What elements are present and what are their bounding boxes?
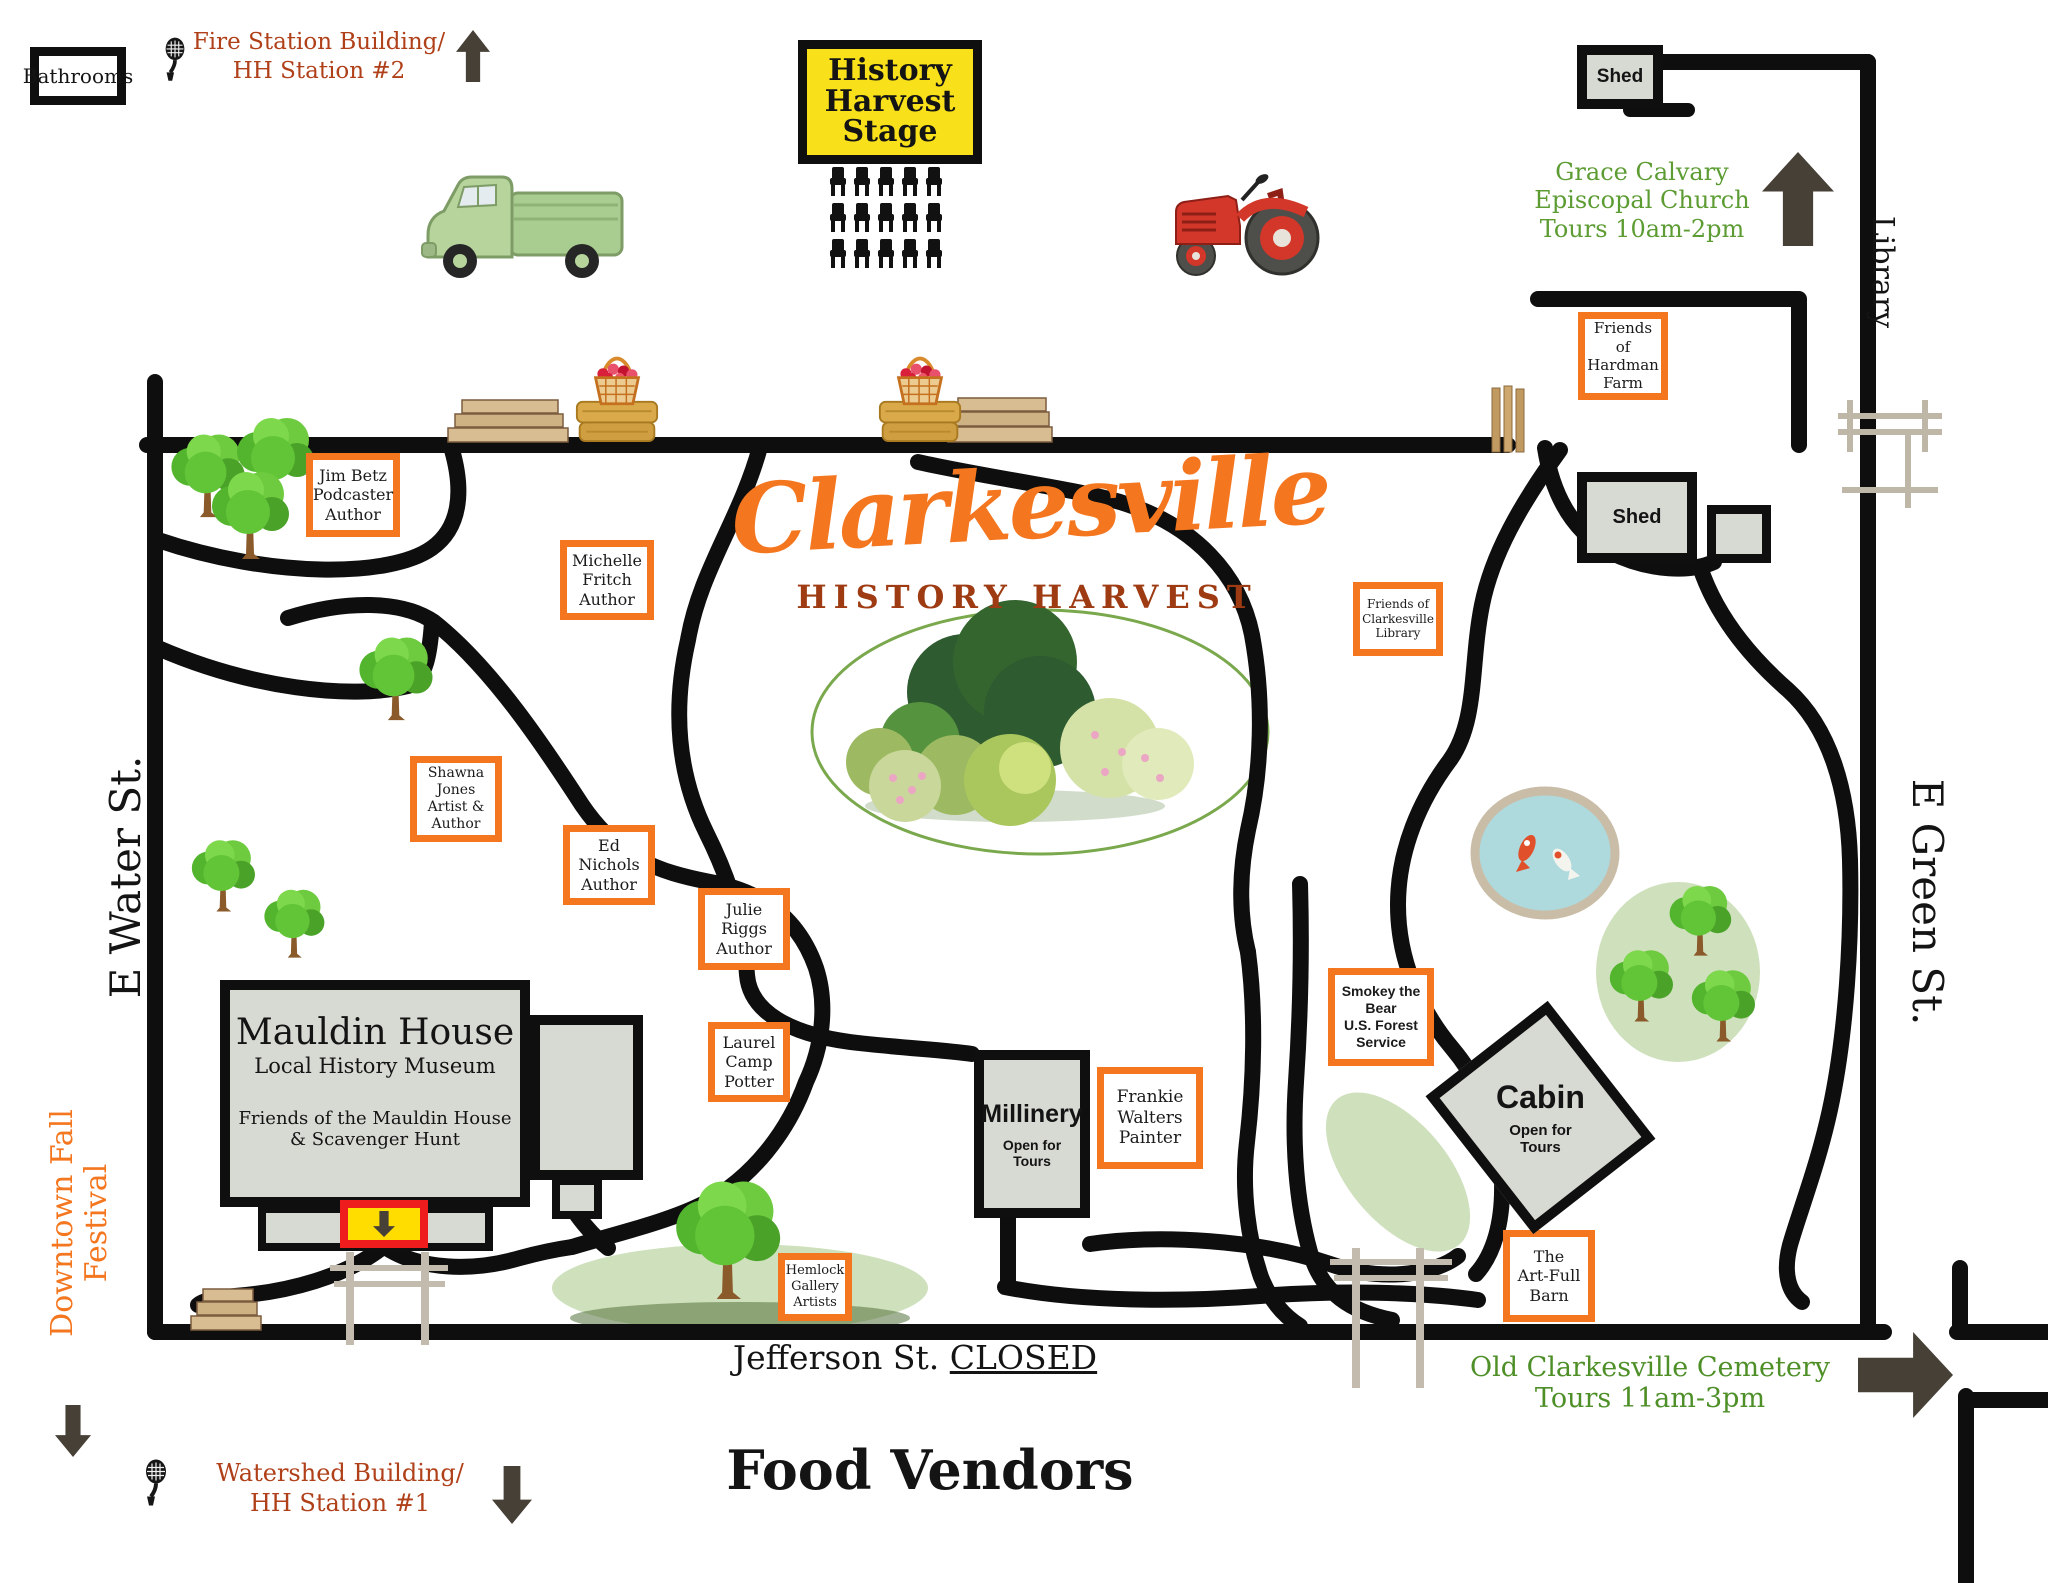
- red-tractor-icon: [1176, 172, 1318, 275]
- shed-mid-annex: [1707, 505, 1771, 563]
- e-green-street-label: E Green St.: [1904, 752, 1952, 1052]
- vendor-box-friends-clarkesville-library: Friends of Clarkesville Library: [1353, 582, 1443, 656]
- fence-top-planks: [1492, 386, 1524, 452]
- vendor-line: Service: [1356, 1034, 1406, 1051]
- vendor-line: Fritch: [582, 570, 632, 590]
- vendor-line: Laurel: [723, 1033, 776, 1053]
- vendor-line: U.S. Forest: [1344, 1017, 1418, 1034]
- vendor-line: Author: [716, 939, 772, 959]
- cemetery-line1: Old Clarkesville Cemetery: [1445, 1352, 1855, 1383]
- vendor-line: Painter: [1119, 1128, 1181, 1149]
- vendor-line: Potter: [724, 1072, 774, 1092]
- jefferson-closed-text: CLOSED: [950, 1338, 1097, 1377]
- vendor-box-julie-riggs: Julie Riggs Author: [698, 888, 790, 970]
- koi-pond: [1475, 791, 1615, 915]
- vendor-line: Frankie: [1117, 1087, 1184, 1108]
- map-subtitle: HISTORY HARVEST: [782, 578, 1272, 616]
- library-street-label: Library: [1860, 192, 1900, 352]
- millinery-name: Millinery: [981, 1100, 1082, 1129]
- microphone-icon: [146, 1460, 166, 1506]
- vendor-box-hemlock-gallery: Hemlock Gallery Artists: [778, 1253, 852, 1321]
- vendor-line: Riggs: [721, 919, 767, 939]
- vendor-line: Michelle: [572, 551, 642, 571]
- vendor-line: Author: [581, 875, 637, 895]
- vendor-line: Hemlock: [786, 1263, 845, 1279]
- vendor-line: Julie: [726, 900, 762, 920]
- vendor-line: Jones: [437, 782, 476, 799]
- vendor-line: Nichols: [578, 855, 639, 875]
- watershed-line1: Watershed Building/: [200, 1458, 480, 1488]
- vendor-box-michelle-fritch: Michelle Fritch Author: [560, 540, 654, 620]
- food-vendors-label: Food Vendors: [690, 1438, 1170, 1502]
- e-water-street-label: E Water St.: [101, 727, 149, 1027]
- stage-line: History: [828, 56, 952, 87]
- vendor-line: Author: [579, 590, 635, 610]
- vendor-line: Walters: [1117, 1108, 1182, 1129]
- path-bottom-inner-2: [1090, 1239, 1458, 1274]
- church-line2: Episcopal Church: [1532, 186, 1752, 214]
- path-bottom-inner-1: [1005, 1287, 1478, 1300]
- tree-icon: [192, 840, 255, 911]
- vendor-box-frankie-walters: Frankie Walters Painter: [1097, 1067, 1203, 1169]
- vendor-line: Artists: [793, 1295, 837, 1311]
- church-tours-sign: Grace Calvary Episcopal Church Tours 10a…: [1532, 158, 1752, 243]
- fire-station-line1: Fire Station Building/: [188, 28, 450, 57]
- vendor-line: Library: [1376, 626, 1421, 641]
- vendor-line: Friends of: [1367, 597, 1429, 612]
- millinery-building: Millinery Open for Tours: [974, 1050, 1090, 1218]
- mauldin-house-building: Mauldin House Local History Museum Frien…: [220, 980, 530, 1207]
- mauldin-annex-connector: [552, 1177, 602, 1219]
- mauldin-entrance-down-arrow-icon: [373, 1211, 395, 1237]
- apple-basket-icon: [880, 358, 960, 441]
- church-line3: Tours 10am-2pm: [1532, 215, 1752, 243]
- mauldin-name: Mauldin House: [236, 1014, 514, 1052]
- e-water-text: E Water St.: [101, 756, 150, 999]
- tree-icon: [264, 890, 324, 958]
- bathrooms-label: Bathrooms: [23, 64, 133, 88]
- cemetery-tours-sign: Old Clarkesville Cemetery Tours 11am-3pm: [1445, 1352, 1855, 1414]
- road-bottom-right-corner: [1960, 1268, 2048, 1583]
- cabin-name: Cabin: [1496, 1079, 1585, 1116]
- vendor-box-smokey-bear: Smokey the Bear U.S. Forest Service: [1328, 968, 1434, 1066]
- fire-station-line2: HH Station #2: [188, 57, 450, 86]
- vendor-line: Shawna: [428, 765, 484, 782]
- vendor-line: Smokey the: [1342, 983, 1421, 1000]
- vendor-box-shawna-jones: Shawna Jones Artist & Author: [410, 756, 502, 842]
- cabin-open2: Tours: [1496, 1139, 1585, 1156]
- vendor-line: Art-Full: [1518, 1266, 1581, 1286]
- vendor-box-ed-nichols: Ed Nichols Author: [563, 825, 655, 905]
- vendor-line: Artist &: [428, 799, 485, 816]
- shed-top-building: Shed: [1577, 45, 1663, 109]
- shed-label: Shed: [1597, 66, 1643, 88]
- vendor-line: Camp: [725, 1052, 772, 1072]
- vendor-line: Author: [432, 816, 481, 833]
- subtitle-text: HISTORY HARVEST: [796, 578, 1257, 616]
- millinery-open2: Tours: [1013, 1153, 1051, 1169]
- cabin-open1: Open for: [1496, 1122, 1585, 1139]
- vendor-line: Author: [325, 505, 381, 525]
- church-line1: Grace Calvary: [1532, 158, 1752, 186]
- stage-line: Stage: [842, 117, 937, 148]
- downtown-line2: Festival: [80, 1093, 114, 1353]
- vendor-line: Jim Betz: [319, 466, 387, 486]
- stage-line: Harvest: [825, 87, 956, 118]
- vendor-box-friends-hardman: Friends of Hardman Farm: [1578, 312, 1668, 400]
- cemetery-line2: Tours 11am-3pm: [1445, 1383, 1855, 1414]
- apple-basket-icon: [577, 358, 657, 441]
- stage-chairs: [830, 167, 942, 268]
- event-map: Bathrooms Fire Station Building/ HH Stat…: [0, 0, 2048, 1583]
- millinery-open1: Open for: [1003, 1137, 1061, 1153]
- downtown-fall-festival-label: Downtown Fall Festival: [46, 1093, 118, 1353]
- microphone-icon: [166, 38, 185, 81]
- vendor-line: The: [1534, 1247, 1564, 1267]
- jefferson-text: Jefferson St.: [733, 1338, 939, 1377]
- downtown-line1: Downtown Fall: [46, 1093, 80, 1353]
- platform-left: [448, 400, 568, 442]
- history-harvest-stage-sign: History Harvest Stage: [798, 40, 982, 164]
- mauldin-annex-right: [530, 1015, 643, 1180]
- vendor-line: Clarkesville: [1362, 612, 1434, 627]
- vendor-line: Friends of: [1585, 319, 1661, 356]
- vendor-line: Barn: [1529, 1286, 1568, 1306]
- vendor-line: Podcaster: [313, 485, 393, 505]
- vendor-line: Bear: [1365, 1000, 1396, 1017]
- mauldin-note1: Friends of the Mauldin House: [238, 1108, 511, 1129]
- platform-right: [948, 398, 1052, 442]
- mauldin-entrance-marker: [340, 1200, 428, 1248]
- library-text: Library: [1865, 216, 1900, 328]
- tree-icon: [359, 638, 432, 721]
- vendor-line: Farm: [1603, 374, 1643, 392]
- vendor-line: Hardman: [1587, 356, 1659, 374]
- vendor-line: Ed: [598, 836, 620, 856]
- watershed-line2: HH Station #1: [200, 1488, 480, 1518]
- fence-top-right: [1838, 400, 1942, 508]
- shed-label: Shed: [1613, 506, 1662, 529]
- green-truck-icon: [422, 177, 622, 278]
- vendor-box-laurel-camp: Laurel Camp Potter: [708, 1022, 790, 1102]
- vendor-box-artfull-barn: The Art-Full Barn: [1503, 1230, 1595, 1322]
- vendor-box-jim-betz: Jim Betz Podcaster Author: [306, 453, 400, 537]
- food-vendors-text: Food Vendors: [726, 1438, 1133, 1502]
- vendor-line: Gallery: [791, 1279, 839, 1295]
- garden-bed: [812, 600, 1268, 854]
- shed-mid-building: Shed: [1577, 472, 1697, 563]
- mauldin-type: Local History Museum: [254, 1054, 495, 1078]
- fire-station-sign: Fire Station Building/ HH Station #2: [188, 28, 450, 86]
- jefferson-street-label: Jefferson St. CLOSED: [700, 1338, 1130, 1377]
- watershed-sign: Watershed Building/ HH Station #1: [200, 1458, 480, 1518]
- mauldin-note2: & Scavenger Hunt: [290, 1129, 460, 1150]
- bathrooms-sign: Bathrooms: [30, 47, 126, 105]
- e-green-text: E Green St.: [1903, 779, 1952, 1026]
